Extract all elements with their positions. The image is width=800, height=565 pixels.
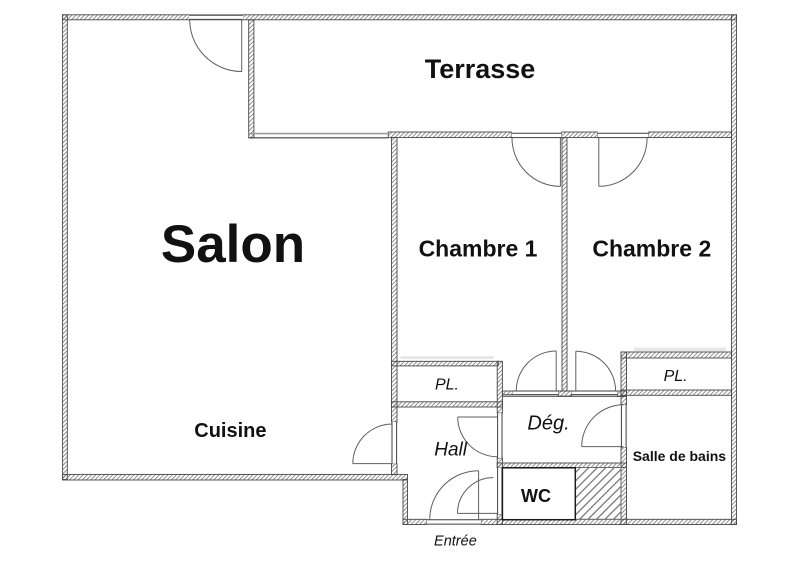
svg-text:Salon: Salon [161, 215, 305, 274]
svg-text:Dég.: Dég. [527, 413, 569, 435]
svg-text:Hall: Hall [434, 439, 468, 460]
svg-text:Chambre 2: Chambre 2 [592, 236, 711, 262]
svg-text:WC: WC [521, 486, 551, 506]
svg-text:Chambre 1: Chambre 1 [419, 236, 538, 262]
svg-text:Terrasse: Terrasse [425, 54, 536, 84]
svg-text:PL.: PL. [435, 377, 459, 394]
svg-text:Salle de bains: Salle de bains [633, 448, 727, 464]
svg-text:Cuisine: Cuisine [194, 420, 266, 442]
svg-text:Entrée: Entrée [434, 534, 477, 550]
svg-text:PL.: PL. [664, 368, 688, 385]
